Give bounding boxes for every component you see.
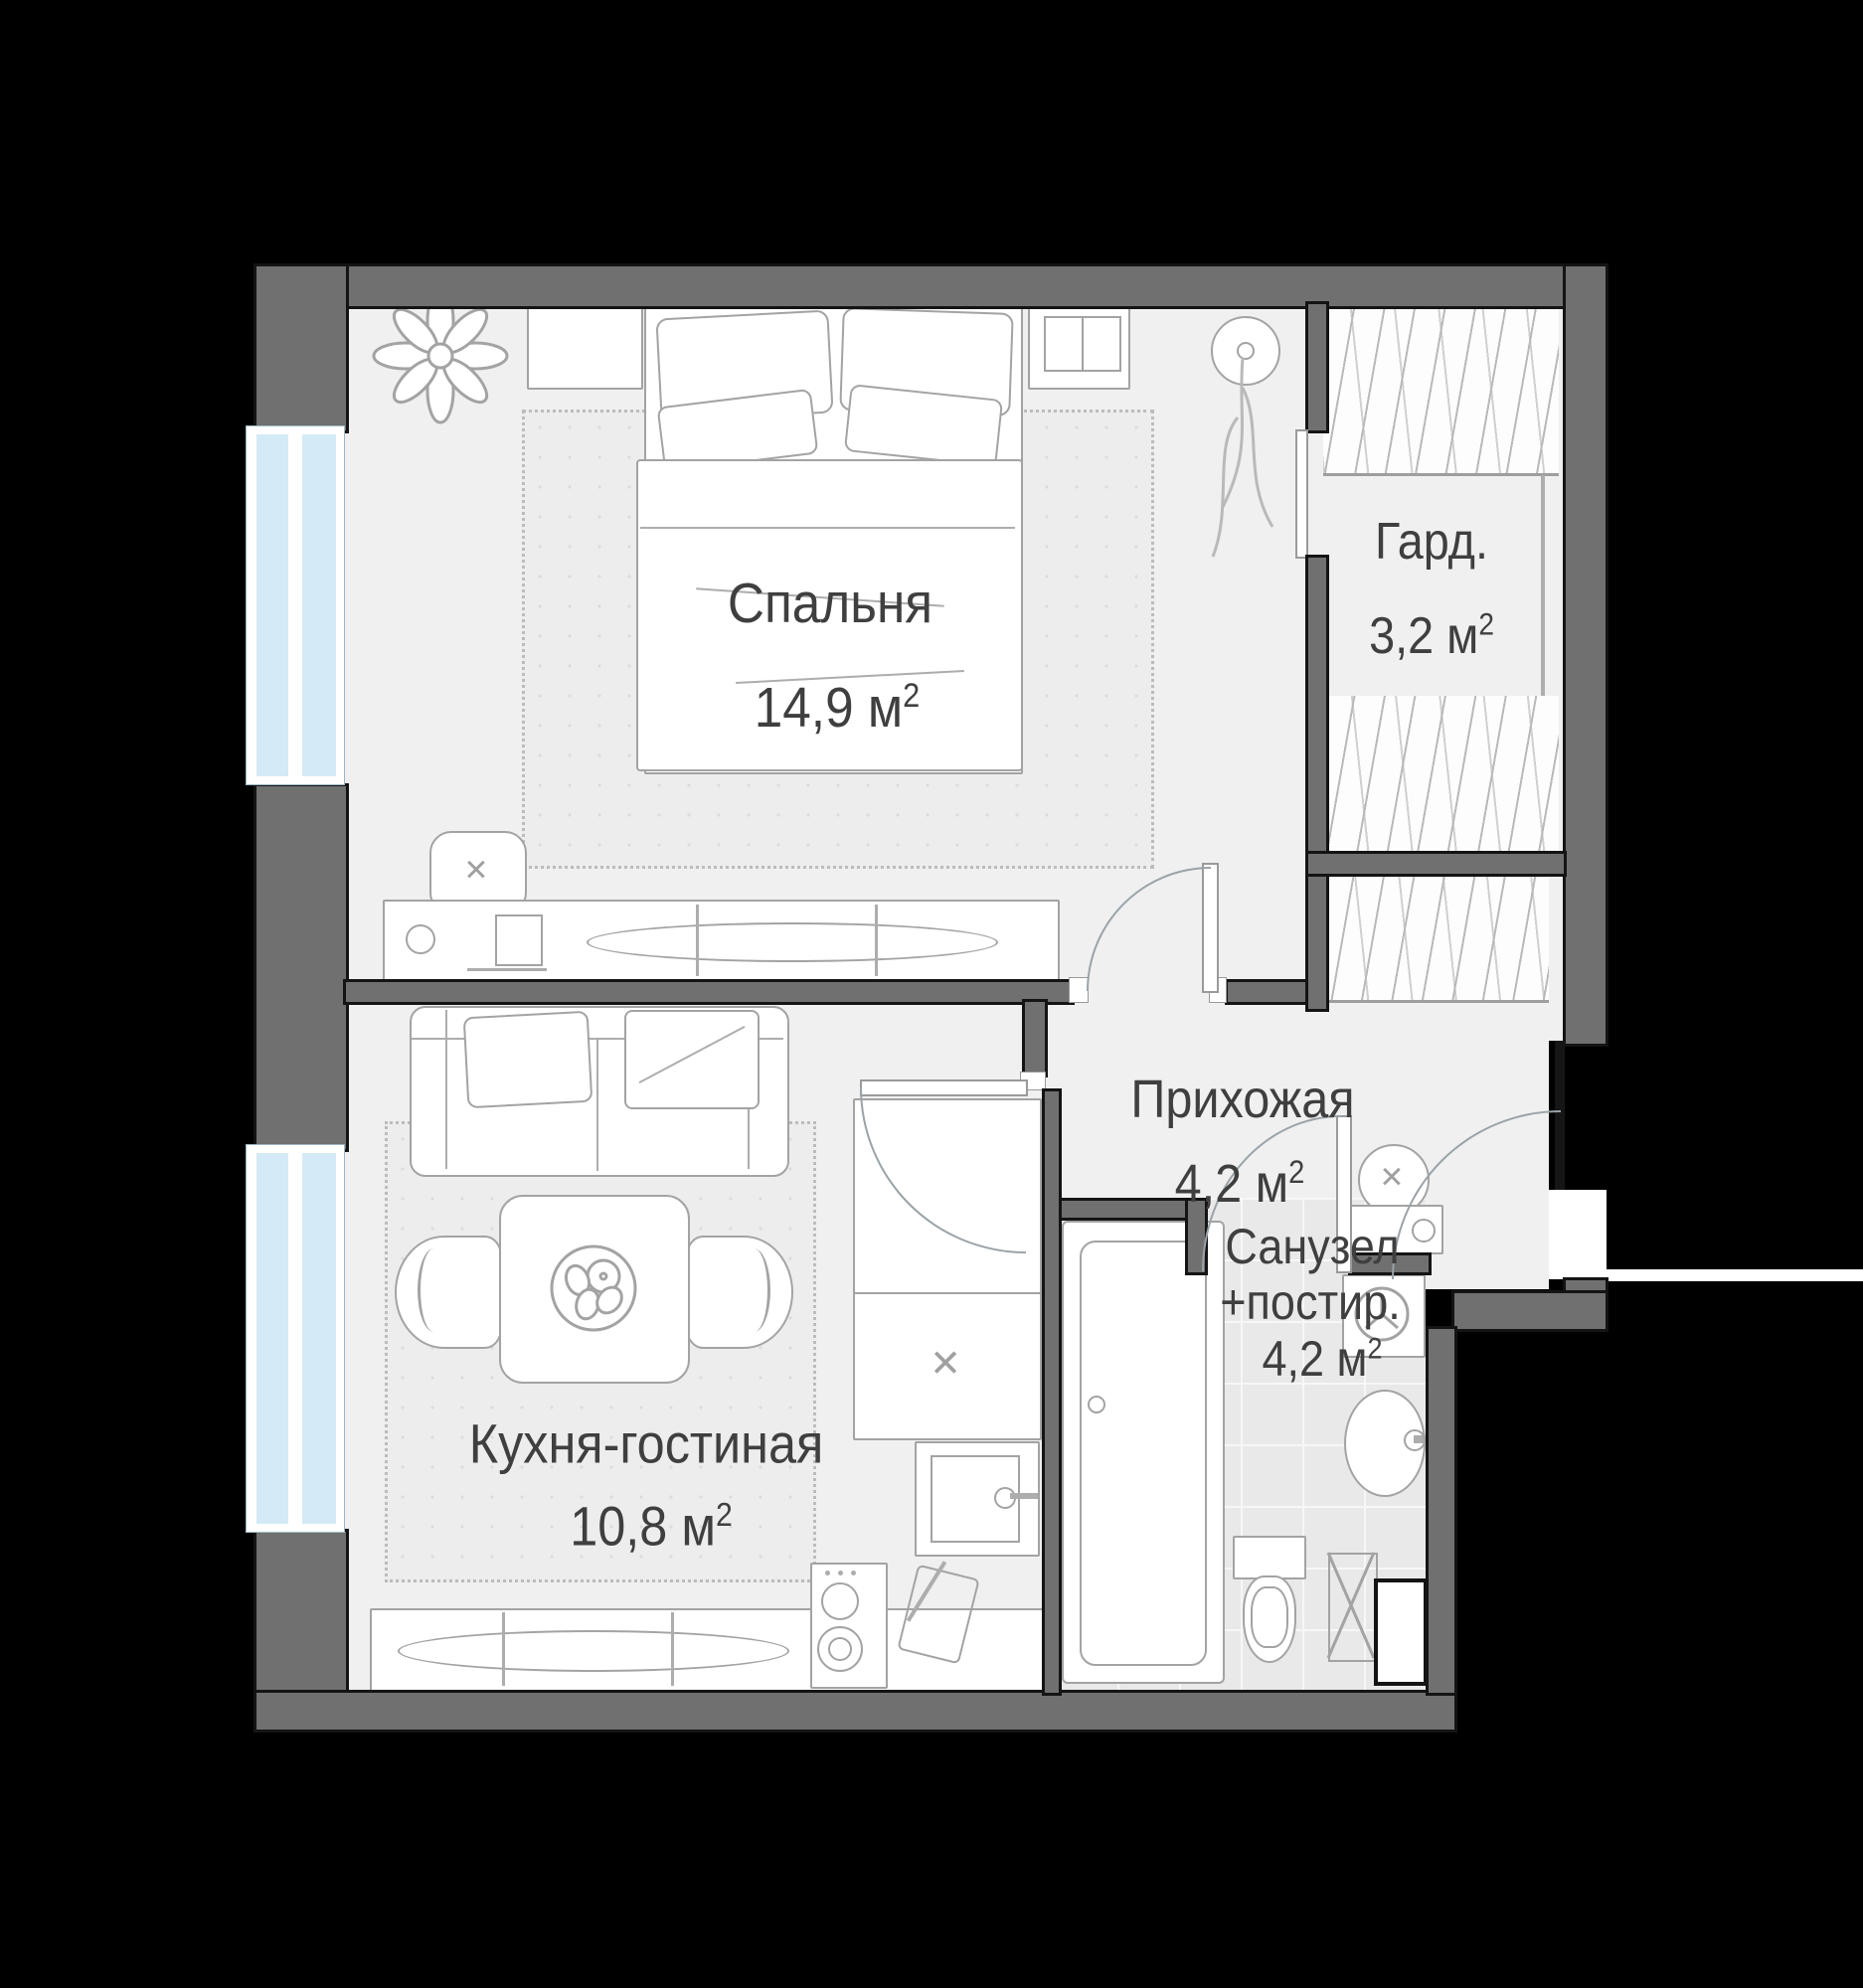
kitchen-living-area-label: 10,8 м2 [570,1494,733,1559]
bedroom-area-label: 14,9 м2 [755,675,921,741]
wardrobe-area-label: 3,2 м2 [1369,606,1494,666]
hallway-name-label: Прихожая [1130,1069,1354,1130]
hallway-area-label: 4,2 м2 [1175,1153,1305,1215]
wall-kitchen-vertical [1042,1088,1062,1696]
bathtub-basin [1080,1241,1207,1666]
wall-hall-vertical [1022,999,1048,1077]
shelf-tick [875,905,878,976]
wall-left-upper [254,263,349,433]
sofa-pillow [463,1011,593,1108]
door-jamb [1069,977,1089,1003]
burner-icon [821,1582,859,1620]
wardrobe-name-label: Гард. [1375,512,1488,572]
closet-shelf-divider [1305,851,1567,877]
shelf-tick [671,1612,674,1686]
mug-icon [406,924,435,954]
book-icon [1044,316,1084,372]
wall-wardrobe-lower [1305,555,1329,1012]
chair-cross-icon: ✕ [463,854,488,889]
window [246,425,345,785]
shelf-tick [502,1612,505,1686]
wall-bedroom-south [343,979,1075,1005]
entry-threshold-line [1603,1269,1863,1281]
window [246,1144,345,1533]
floor-plan-canvas: ✕ ✕ [0,0,1863,1988]
sofa-armrest-line [445,1010,447,1169]
wardrobe-shelf-line [1541,475,1545,696]
wall-right-bathroom [1426,1326,1457,1696]
wall-wardrobe-upper [1305,301,1329,433]
bathtub-drain [1088,1396,1105,1413]
bathroom-area-label: 4,2 м2 [1262,1330,1382,1388]
bathroom-name-label-2: +постир. [1220,1273,1400,1331]
counter-shelf [398,1630,789,1672]
chair-seat-arc [738,1248,770,1332]
fruit-bowl-icon [548,1242,639,1334]
dresser-shelf [587,922,998,962]
burner-inner [828,1637,852,1661]
sofa-seat-split [596,1040,598,1171]
keyboard-line [467,968,547,971]
vent-shaft-cross-icon [1328,1553,1374,1658]
book-icon [1082,316,1121,372]
stove-dot [851,1571,856,1575]
bathroom-name-label-1: Санузел [1225,1218,1399,1275]
blanket-fold-line [640,527,1015,529]
nightstand-left [527,306,643,390]
stove-dot [825,1571,830,1575]
sofa-throw [624,1010,760,1109]
branch-decor-icon [1183,358,1302,577]
cabinet-cross-icon: ✕ [930,1342,961,1387]
wardrobe-rack-bottom [1323,696,1559,854]
wardrobe-rack-top [1323,306,1559,476]
service-niche [1374,1578,1428,1686]
wall-left-middle [254,783,349,1152]
hallway-closet-rack [1323,871,1549,1003]
stove-dot [838,1571,843,1575]
wall-right-upper [1563,263,1609,1047]
wardrobe-door-leaf [1295,429,1308,559]
wall-entry-step [1451,1290,1609,1332]
toilet-seat-line [1251,1586,1288,1648]
sink-faucet-knob [1404,1429,1426,1451]
hall-sink-cross-icon: ✕ [1379,1161,1404,1196]
toilet-tank [1233,1536,1306,1579]
wall-bathroom-top-left [1056,1198,1191,1221]
chair-seat-arc [418,1248,450,1332]
bedroom-name-label: Спальня [728,571,932,636]
monitor-icon [495,914,543,966]
kitchen-living-name-label: Кухня-гостиная [469,1411,824,1476]
wall-bottom [254,1690,1457,1733]
shelf-tick [696,905,699,976]
wall-top [254,263,1609,309]
faucet-lever [1010,1493,1038,1499]
